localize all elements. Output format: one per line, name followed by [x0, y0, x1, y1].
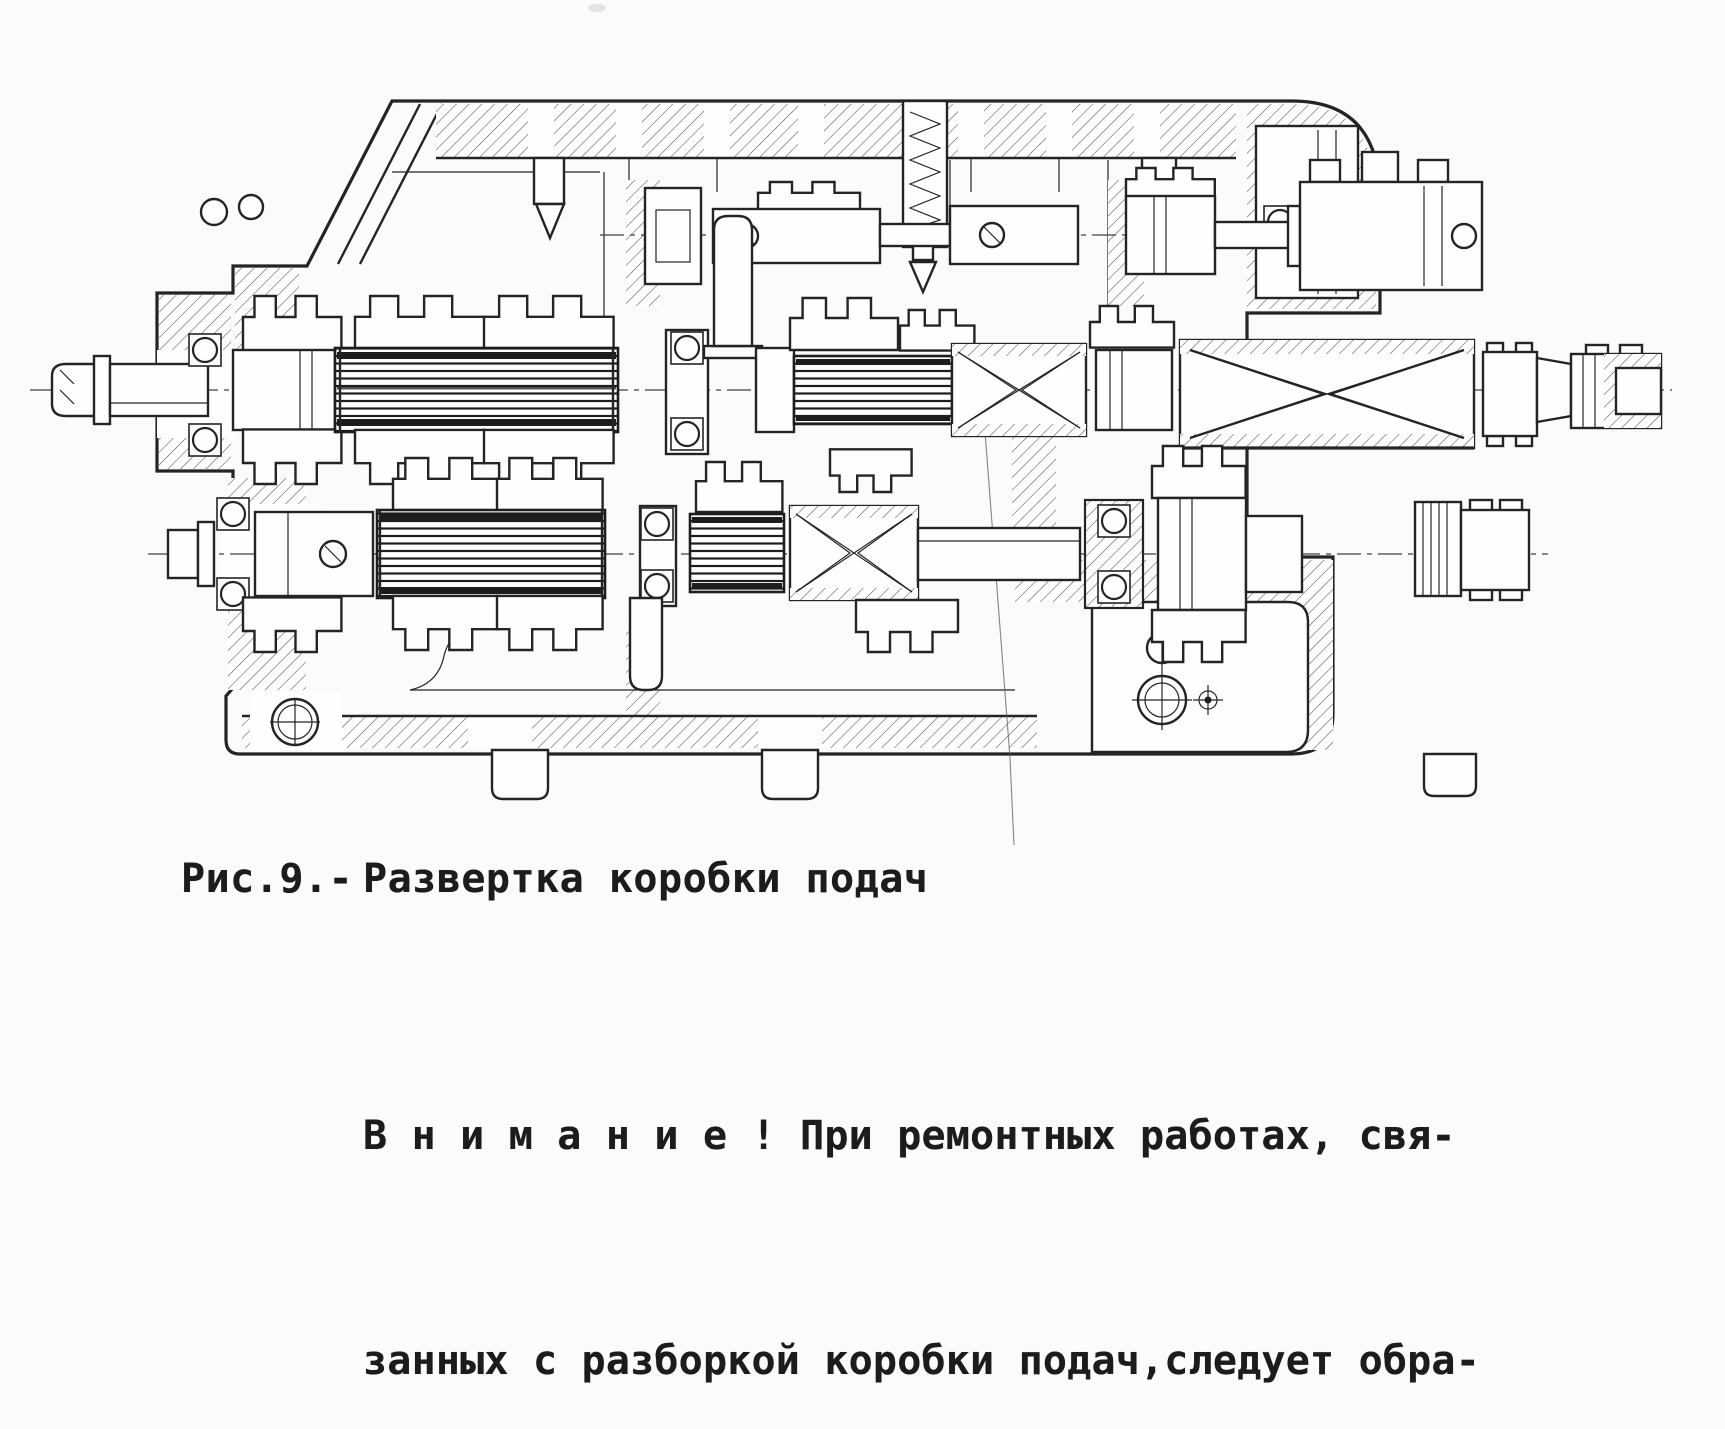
- figure-area: [0, 0, 1725, 855]
- detent-plunger-left: [534, 158, 564, 238]
- scanned-manual-page: Рис.9.- Развертка коробки подач В н и м …: [0, 0, 1725, 1429]
- figure-caption: Рис.9.- Развертка коробки подач: [0, 856, 1725, 906]
- note-line: занных с разборкой коробки подач,следует…: [363, 1324, 1543, 1399]
- lower-right-bearing-block: [1085, 500, 1143, 608]
- upper-x-coupling: [952, 344, 1086, 436]
- top-right-coupling: [1288, 152, 1482, 290]
- attention-note: В н и м а н и е ! При ремонтных работах,…: [363, 949, 1543, 1429]
- note-line: В н и м а н и е ! При ремонтных работах,…: [363, 1099, 1543, 1174]
- figure-caption-title: Развертка коробки подач: [363, 856, 928, 902]
- lower-x-coupling: [790, 506, 918, 600]
- figure-caption-label: Рис.9.-: [181, 856, 353, 902]
- lower-shaft: [148, 446, 1548, 690]
- upper-x-drum: [1180, 340, 1474, 448]
- upper-output-end: [1483, 343, 1661, 446]
- left-foot-hole: [250, 692, 342, 750]
- spring-detent: [903, 101, 947, 292]
- feed-gearbox-sectional-drawing: [0, 0, 1725, 855]
- lower-output-end: [1415, 500, 1529, 600]
